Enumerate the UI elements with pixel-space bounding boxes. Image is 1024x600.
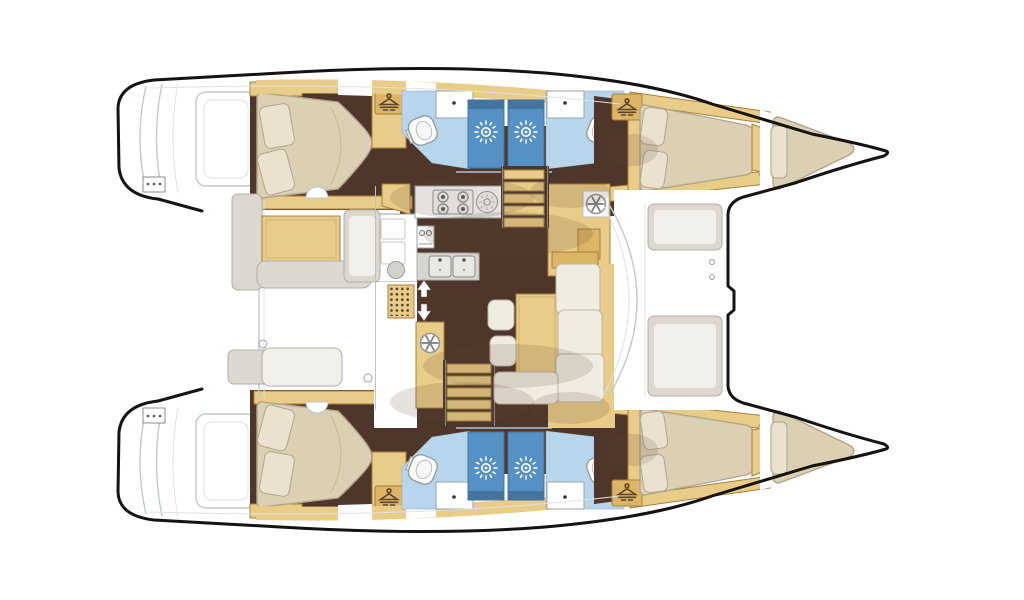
- faucet-dot-icon: [452, 101, 456, 105]
- pillow: [771, 126, 787, 178]
- deck-fitting: [259, 340, 267, 348]
- floor-grate: [388, 285, 414, 318]
- catamaran-floor-plan: [0, 0, 1024, 600]
- coachroof-window: [338, 79, 372, 96]
- faucet-dot-icon: [462, 258, 465, 261]
- floor-plan-canvas: [0, 0, 1024, 600]
- settee-cushion: [556, 264, 600, 314]
- cockpit-bench: [262, 348, 342, 386]
- transom-steps: [140, 83, 256, 193]
- faucet-dot-icon: [563, 101, 567, 105]
- deck-fitting: [364, 374, 372, 382]
- double-sink: [417, 253, 479, 280]
- cockpit-table: [262, 216, 340, 262]
- faucet-dot-icon: [438, 258, 441, 261]
- shower-stalls: [456, 100, 552, 172]
- shower-stall: [468, 100, 504, 168]
- vent-wheel-icon: [421, 334, 440, 353]
- porthole: [388, 262, 405, 279]
- shower-stall: [508, 100, 544, 168]
- aft-cockpit: [228, 186, 380, 410]
- forward-cockpit: [603, 190, 724, 410]
- transom-fitting: [143, 177, 165, 192]
- stool: [488, 300, 514, 330]
- hanger-locker-box: [612, 94, 642, 120]
